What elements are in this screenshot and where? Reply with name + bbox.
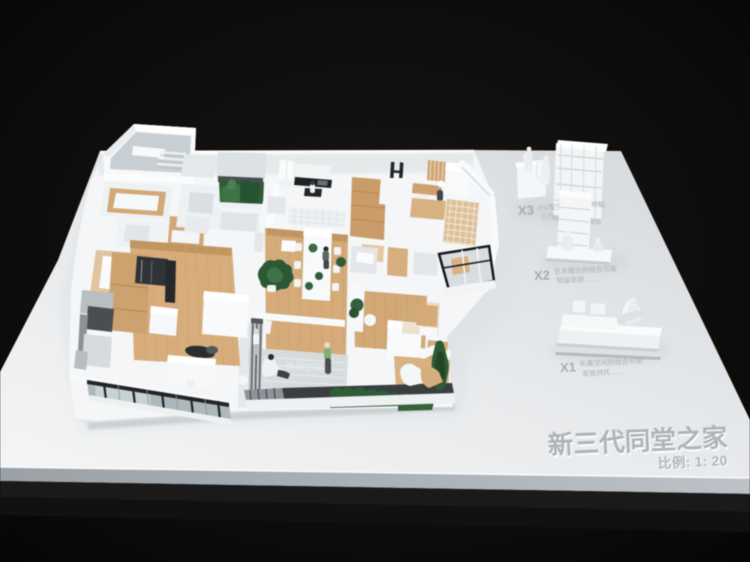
svg-text:X3: X3 [518, 202, 535, 218]
svg-text:X1: X1 [560, 359, 577, 375]
svg-text:X2: X2 [534, 267, 551, 283]
svg-text:比例: 1: 20: 比例: 1: 20 [658, 452, 728, 471]
svg-text:休闲空间: 休闲空间 [286, 360, 323, 373]
